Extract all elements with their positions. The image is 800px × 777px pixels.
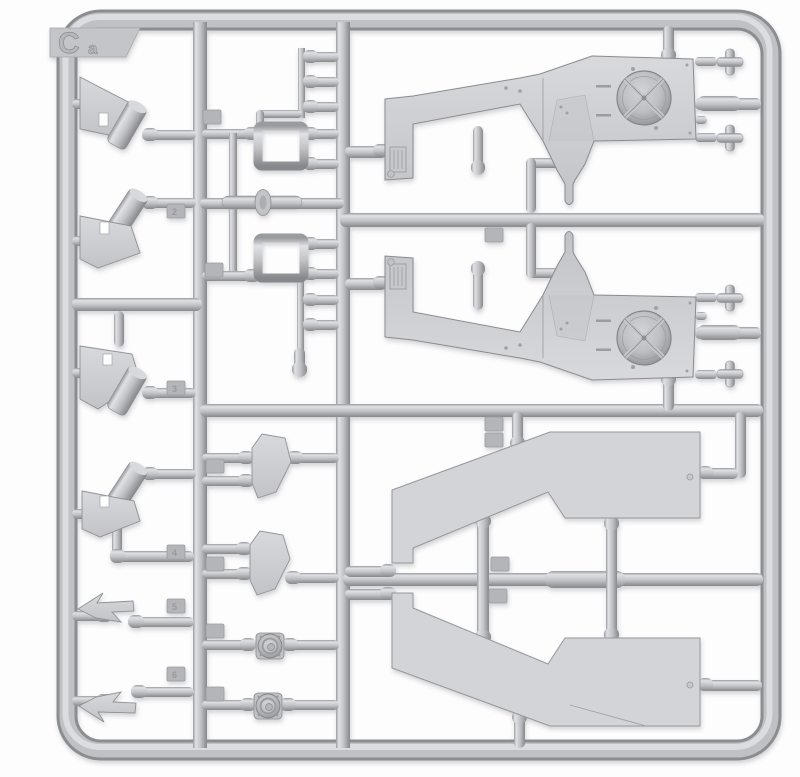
part-cross-cap-4: [717, 361, 743, 387]
part-shield-plate-2: [250, 531, 290, 595]
part-wedge-roller-3: [80, 346, 149, 417]
part-number-tag: [485, 228, 503, 242]
part-number-tag: [206, 687, 224, 701]
part-wedge-roller-1: [80, 77, 149, 151]
part-wedge-roller-2: [80, 186, 150, 268]
part-number-tag: [206, 557, 224, 571]
part-wedge-roller-4: [82, 459, 150, 537]
runner-left-column-divider: [72, 298, 202, 311]
part-fender-assembly-1: [385, 56, 696, 205]
sprue-illustration: Light-gray styrene model kit sprue, fram…: [0, 0, 800, 777]
part-number-tag: [203, 110, 221, 124]
svg-text:4: 4: [172, 548, 177, 558]
part-number-tag: [485, 433, 503, 447]
sprue-letter-plate: C a: [50, 27, 140, 60]
runner-vertical-middle: [336, 22, 350, 748]
svg-text:5: 5: [172, 602, 177, 612]
part-hull-panel-top: [392, 432, 700, 563]
part-hull-panel-bottom: [392, 593, 700, 726]
part-cross-cap-1: [717, 49, 743, 75]
svg-text:6: 6: [172, 670, 177, 680]
part-frame-loop-1: [258, 126, 304, 166]
part-number-tag: [491, 557, 509, 571]
part-number-tag: 3: [167, 381, 185, 395]
part-number-tag: 4: [167, 545, 185, 559]
part-number-tag: [206, 624, 224, 638]
runner-cross-middle: [200, 404, 763, 417]
part-number-tag: [485, 417, 503, 431]
part-number-tag: 6: [167, 667, 185, 681]
part-shield-plate-1: [252, 434, 291, 498]
part-number-tag: [206, 459, 224, 473]
part-pulley-1: [256, 633, 284, 659]
part-cross-cap-2: [717, 125, 743, 151]
svg-text:3: 3: [172, 384, 177, 394]
runner-cross-upper: [340, 213, 764, 227]
fan-recess-icon: [617, 71, 671, 125]
sprue-letter-suffix: a: [88, 39, 98, 58]
sprue-photo: Light-gray styrene model kit sprue, fram…: [0, 0, 800, 777]
part-frame-loop-2: [258, 238, 304, 278]
part-number-tag: 2: [167, 204, 185, 218]
part-fender-assembly-2: [385, 232, 696, 381]
part-number-tag: [205, 263, 223, 277]
part-cross-cap-3: [717, 285, 743, 311]
svg-text:2: 2: [172, 207, 177, 217]
fan-recess-icon: [617, 311, 671, 365]
sprue-letter: C: [58, 27, 80, 60]
part-pulley-2: [254, 693, 282, 719]
part-number-tag: 5: [167, 599, 185, 613]
part-number-tag: [489, 589, 507, 603]
